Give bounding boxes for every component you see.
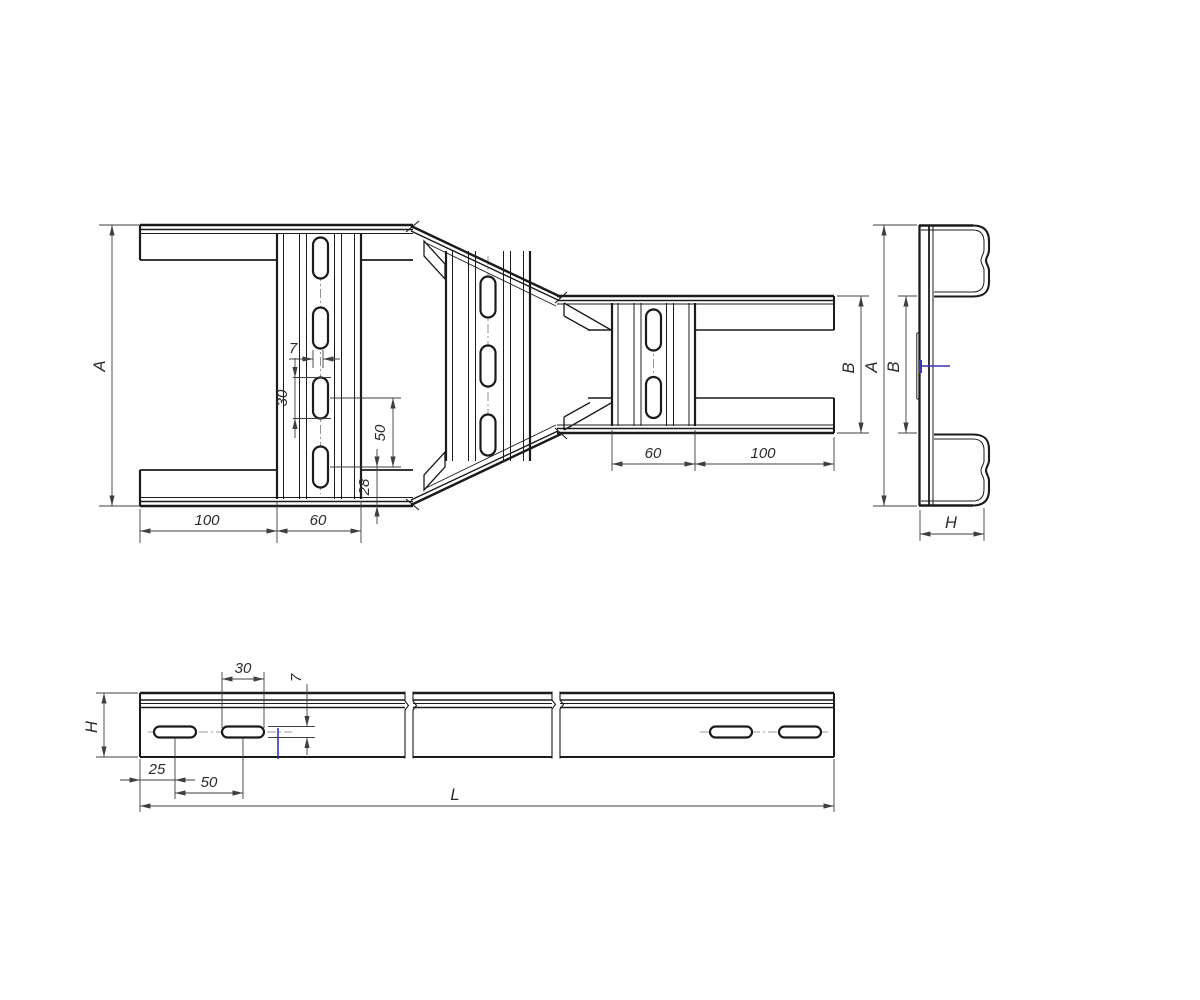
side-view: H 30 7 25 50 L	[83, 660, 834, 812]
dim-label-plan-7: 7	[289, 340, 298, 357]
plan-view: A 100 60 7 30 50 28 60 100 B	[91, 221, 869, 543]
dim-label-plan-B: B	[840, 362, 858, 373]
dim-label-end-A: A	[863, 361, 881, 373]
rail-slots	[154, 727, 821, 738]
dim-label-plan-100-right: 100	[750, 445, 776, 462]
dim-label-side-50: 50	[201, 774, 218, 791]
dim-label-plan-30: 30	[274, 389, 291, 406]
dim-label-plan-28: 28	[356, 478, 373, 496]
end-view: A B H	[863, 225, 989, 541]
dim-label-end-B: B	[885, 361, 903, 372]
rung-wide	[277, 233, 361, 499]
rung-transition	[446, 251, 530, 461]
dim-label-side-25: 25	[148, 761, 166, 778]
rung-narrow	[612, 303, 695, 426]
dim-label-side-7: 7	[288, 673, 305, 682]
dim-label-plan-100-left: 100	[194, 512, 220, 529]
dim-label-plan-50: 50	[372, 424, 389, 441]
dim-label-plan-60-left: 60	[310, 512, 327, 529]
dim-label-plan-60-right: 60	[645, 445, 662, 462]
dim-label-plan-A: A	[91, 360, 109, 372]
dim-label-end-H: H	[945, 514, 957, 532]
dim-label-side-H: H	[83, 721, 101, 733]
drawing-sheet: A 100 60 7 30 50 28 60 100 B	[0, 0, 1200, 1000]
dim-label-side-30: 30	[235, 660, 252, 677]
dim-label-side-L: L	[450, 786, 459, 804]
technical-drawing: A 100 60 7 30 50 28 60 100 B	[0, 0, 1200, 1000]
center-mark-blue-end-view	[921, 360, 951, 373]
